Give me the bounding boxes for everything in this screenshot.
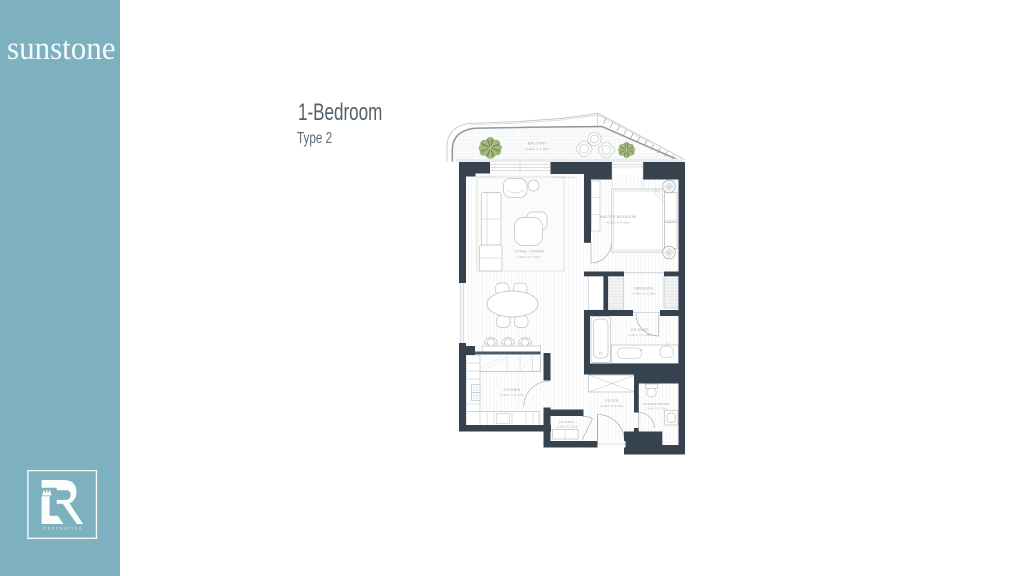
svg-text:KITCHEN: KITCHEN (504, 388, 521, 392)
svg-text:4.80m X 7.70m: 4.80m X 7.70m (517, 255, 541, 259)
svg-text:EN SUITE: EN SUITE (631, 328, 649, 332)
svg-text:DRESSING: DRESSING (634, 287, 654, 291)
svg-text:POWDER ROOM: POWDER ROOM (643, 402, 669, 406)
svg-text:LAUNDRY: LAUNDRY (559, 420, 575, 424)
svg-text:3.20m X 2.10m: 3.20m X 2.10m (601, 404, 624, 408)
svg-text:2.40m X 4.10m: 2.40m X 4.10m (500, 393, 524, 397)
svg-text:1.00m X 1.20m: 1.00m X 1.20m (557, 425, 578, 429)
svg-text:1.40m X 1.20m: 1.40m X 1.20m (633, 292, 656, 296)
svg-text:FOYER: FOYER (606, 399, 619, 403)
svg-text:PROPERTIES: PROPERTIES (44, 527, 84, 531)
svg-text:4.95m X 1.65m: 4.95m X 1.65m (526, 147, 550, 151)
svg-text:LIVING / DINING: LIVING / DINING (514, 250, 544, 254)
svg-text:BALCONY: BALCONY (528, 141, 547, 145)
svg-text:MASTER BEDROOM: MASTER BEDROOM (600, 215, 637, 219)
svg-text:1.67m X 1.73m: 1.67m X 1.73m (646, 406, 667, 410)
svg-text:4.10m X 4.10m: 4.10m X 4.10m (606, 220, 630, 224)
